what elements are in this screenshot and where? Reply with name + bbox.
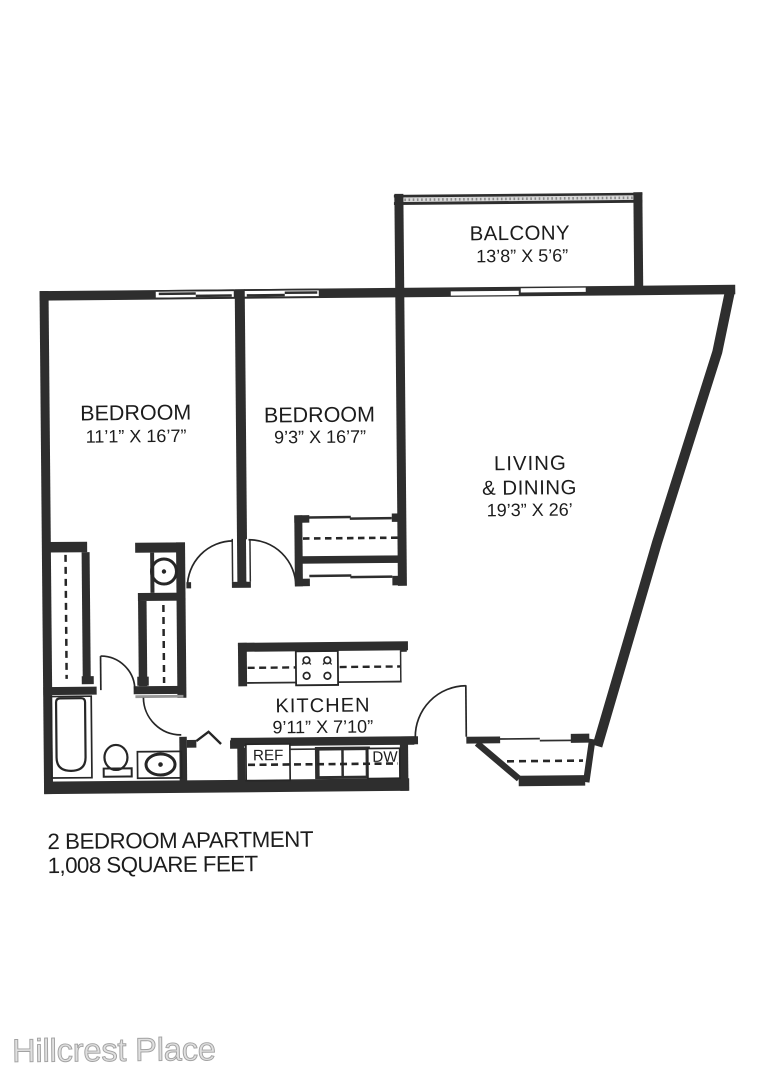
svg-text:Hillcrest Place: Hillcrest Place (12, 1031, 216, 1069)
svg-text:REF: REF (253, 747, 284, 764)
svg-text:2 BEDROOM APARTMENT: 2 BEDROOM APARTMENT (47, 827, 314, 854)
svg-text:9’11” X 7’10”: 9’11” X 7’10” (272, 717, 373, 738)
svg-text:19’3” X 26’: 19’3” X 26’ (487, 500, 573, 521)
svg-text:1,008 SQUARE FEET: 1,008 SQUARE FEET (48, 851, 259, 878)
svg-text:9’3” X 16’7”: 9’3” X 16’7” (274, 427, 366, 448)
svg-text:BEDROOM: BEDROOM (264, 402, 375, 427)
svg-text:11’1” X 16’7”: 11’1” X 16’7” (86, 426, 187, 447)
svg-text:13’8” X 5’6”: 13’8” X 5’6” (476, 246, 568, 267)
svg-text:BEDROOM: BEDROOM (80, 400, 191, 425)
svg-text:LIVING: LIVING (494, 453, 567, 476)
svg-text:KITCHEN: KITCHEN (275, 695, 370, 718)
svg-text:BALCONY: BALCONY (470, 223, 570, 246)
svg-text:& DINING: & DINING (482, 477, 577, 500)
